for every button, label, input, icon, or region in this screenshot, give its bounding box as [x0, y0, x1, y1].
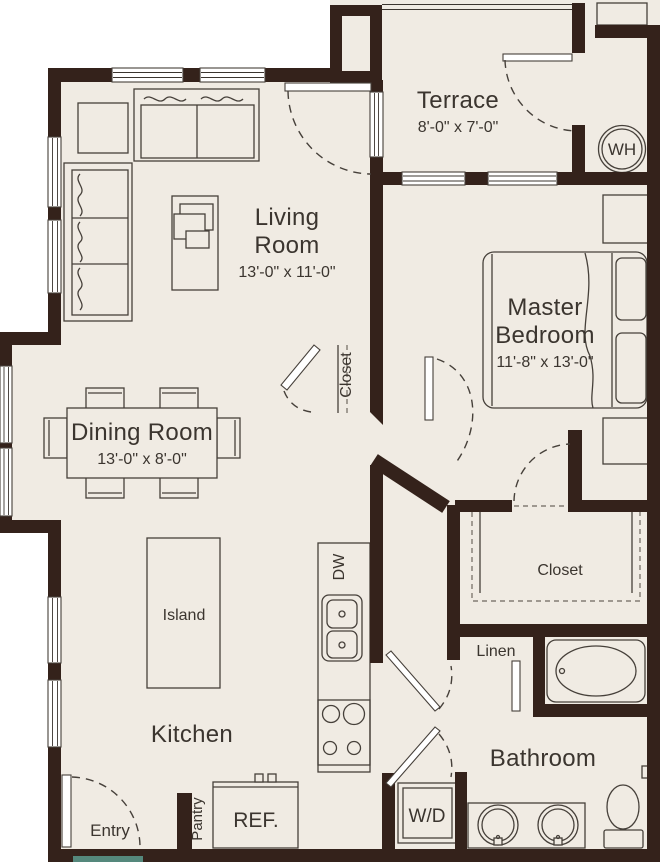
- refrigerator-label: REF.: [233, 809, 279, 832]
- master-bedroom-dimensions: 11'-8" x 13'-0": [496, 354, 593, 371]
- window: [0, 366, 12, 443]
- entry-door-leaf: [62, 775, 71, 847]
- pantry-label: Pantry: [189, 797, 206, 841]
- living-room-dimensions: 13'-0" x 11'-0": [238, 264, 335, 281]
- dishwasher-label: DW: [331, 553, 348, 581]
- dining-chair: [160, 477, 198, 498]
- terrace-sliding-door: [370, 92, 383, 157]
- window: [48, 680, 61, 747]
- floorplan-page: Living Room 13'-0" x 11'-0" Terrace 8'-0…: [0, 0, 670, 862]
- window: [48, 137, 61, 207]
- toilet-tank: [604, 830, 643, 848]
- terrace-label: Terrace: [417, 87, 499, 114]
- dining-chair: [44, 418, 67, 458]
- master-bedroom-label: Master: [507, 294, 582, 321]
- linen-door-leaf: [512, 661, 520, 711]
- dining-chair: [86, 477, 124, 498]
- dining-room-label: Dining Room: [71, 419, 213, 446]
- living-room-label: Room: [254, 232, 319, 259]
- floorplan-canvas: Living Room 13'-0" x 11'-0" Terrace 8'-0…: [0, 0, 670, 862]
- toilet-bowl: [607, 785, 639, 829]
- entry-threshold: [73, 856, 143, 862]
- linen-label: Linen: [476, 643, 515, 660]
- pillow: [616, 333, 646, 403]
- window: [48, 597, 61, 663]
- dining-chair: [217, 418, 240, 458]
- pillow: [616, 258, 646, 320]
- terrace-dimensions: 8'-0" x 7'-0": [418, 119, 499, 136]
- bedroom-door-leaf: [425, 357, 433, 420]
- terrace-door-leaf: [285, 83, 371, 91]
- refrigerator-handle: [268, 774, 276, 782]
- master-bedroom-label: Bedroom: [495, 322, 594, 349]
- books: [186, 231, 209, 248]
- dining-room-dimensions: 13'-0" x 8'-0": [97, 451, 187, 468]
- water-heater-label: WH: [608, 140, 636, 159]
- window: [488, 172, 557, 185]
- master-closet-label: Closet: [537, 562, 583, 579]
- wh-door-leaf: [503, 54, 572, 61]
- refrigerator-handle: [255, 774, 263, 782]
- dining-chair: [160, 388, 198, 409]
- window: [200, 68, 265, 82]
- washer-dryer-label: W/D: [409, 806, 446, 827]
- island-label: Island: [163, 607, 206, 624]
- coat-closet-label: Closet: [338, 352, 355, 398]
- kitchen-label: Kitchen: [151, 721, 233, 748]
- window: [402, 172, 465, 185]
- living-room-label: Living: [255, 204, 320, 231]
- dining-chair: [86, 388, 124, 409]
- bathroom-label: Bathroom: [490, 745, 596, 772]
- entry-label: Entry: [90, 821, 130, 840]
- window: [48, 220, 61, 293]
- window: [112, 68, 183, 82]
- bedroom-west-wall: [370, 185, 383, 425]
- window: [0, 448, 12, 516]
